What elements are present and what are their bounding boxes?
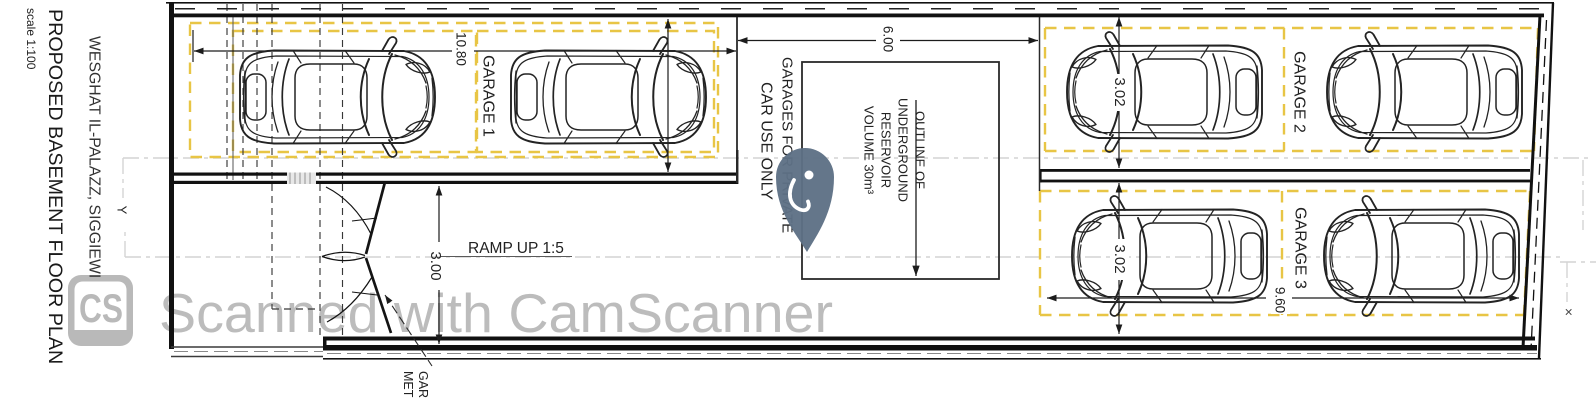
svg-text:3.00: 3.00 (427, 251, 444, 280)
svg-text:Y: Y (115, 206, 130, 215)
svg-text:10.80: 10.80 (454, 32, 469, 66)
svg-text:RESERVOIR: RESERVOIR (879, 112, 894, 188)
svg-text:GARAGE 3: GARAGE 3 (1292, 207, 1309, 289)
svg-text:CS: CS (79, 287, 123, 331)
svg-text:GARAGE 1: GARAGE 1 (480, 55, 497, 137)
svg-text:VOLUME 30m³: VOLUME 30m³ (862, 106, 877, 195)
svg-text:MET: MET (401, 371, 415, 398)
svg-text:3.02: 3.02 (1111, 77, 1128, 106)
svg-text:scale 1:100: scale 1:100 (24, 8, 38, 70)
svg-text:9.60: 9.60 (1273, 287, 1288, 313)
svg-text:OUTLINE OF: OUTLINE OF (913, 111, 928, 189)
svg-text:6.00: 6.00 (881, 26, 896, 52)
svg-text:GAR: GAR (416, 371, 430, 398)
svg-text:CAR USE ONLY: CAR USE ONLY (758, 82, 775, 200)
svg-text:×: × (1561, 308, 1577, 316)
svg-text:PROPOSED BASEMENT FLOOR PLAN: PROPOSED BASEMENT FLOOR PLAN (44, 9, 66, 364)
svg-text:UNDERGROUND: UNDERGROUND (896, 98, 911, 202)
svg-text:Scanned with CamScanner: Scanned with CamScanner (159, 282, 833, 344)
svg-text:GARAGE 2: GARAGE 2 (1291, 51, 1308, 133)
svg-text:RAMP UP 1:5: RAMP UP 1:5 (468, 240, 564, 257)
svg-text:WESGHAT IL-PALAZZ, SIGGIEWI: WESGHAT IL-PALAZZ, SIGGIEWI (86, 36, 103, 278)
svg-text:3.02: 3.02 (1111, 244, 1128, 273)
